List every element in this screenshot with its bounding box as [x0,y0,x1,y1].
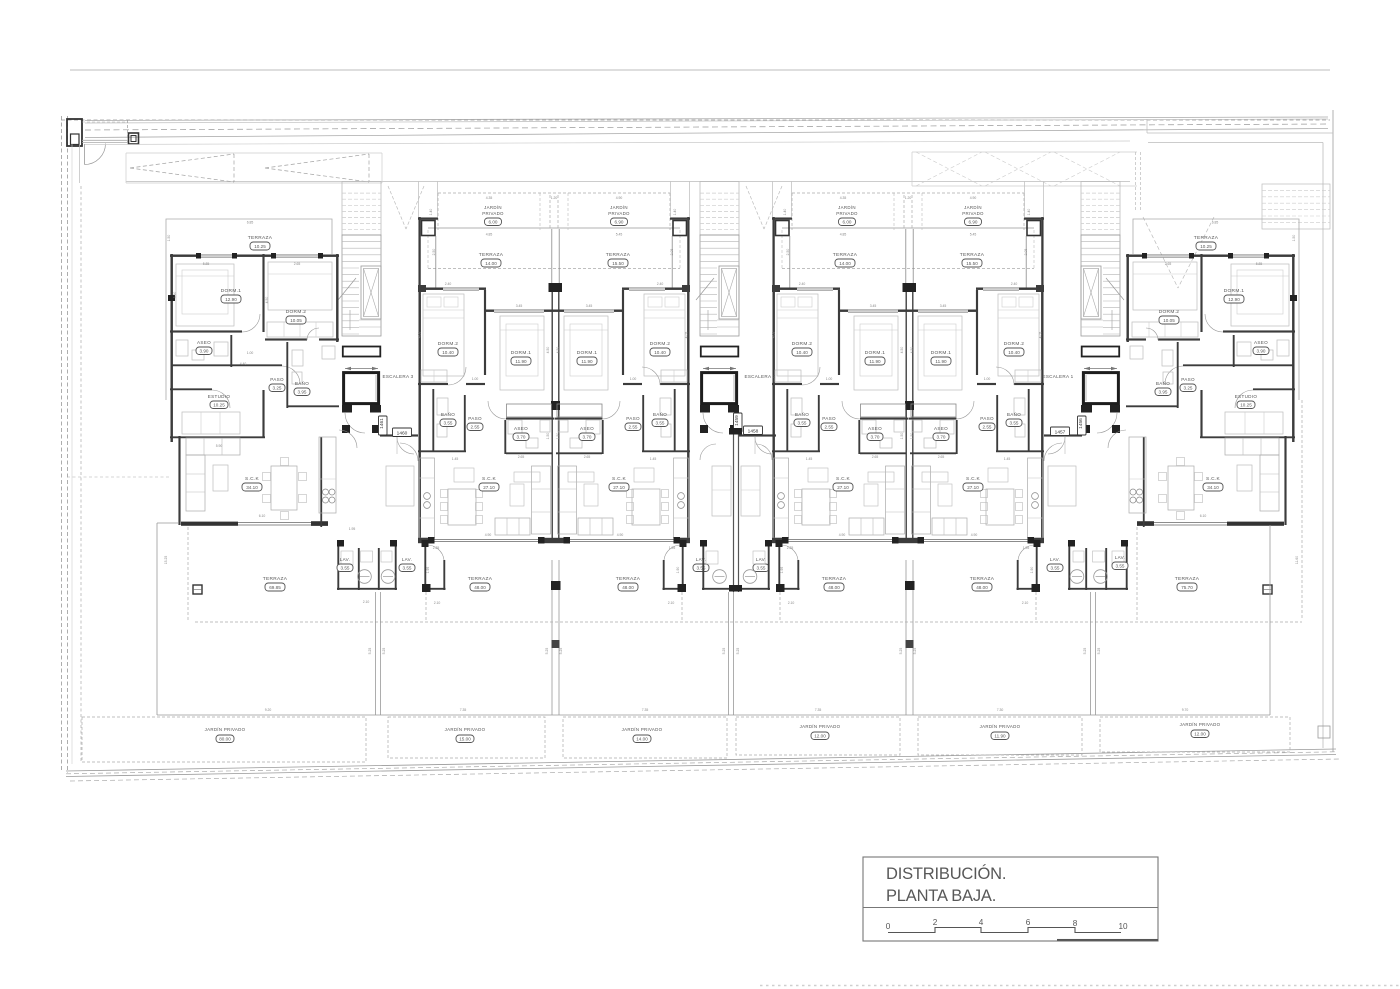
svg-text:5.85: 5.85 [203,262,210,266]
svg-text:5.25: 5.25 [736,648,740,655]
svg-text:1.95: 1.95 [349,527,356,531]
svg-text:ESCALERA 2: ESCALERA 2 [744,374,775,379]
svg-text:1458: 1458 [748,429,759,435]
svg-text:JARDÍN PRIVADO: JARDÍN PRIVADO [980,724,1021,729]
svg-text:S.C.K: S.C.K [1206,476,1221,482]
svg-text:1459: 1459 [734,415,740,426]
svg-text:1.50: 1.50 [1292,235,1296,242]
svg-text:3.95: 3.95 [1159,389,1168,394]
svg-text:ASEO: ASEO [1254,340,1268,345]
svg-text:2.65: 2.65 [1165,262,1172,266]
svg-text:BAÑO: BAÑO [295,380,309,386]
svg-text:1460: 1460 [397,431,408,437]
svg-text:1461: 1461 [379,418,385,429]
svg-text:5.25: 5.25 [545,648,549,655]
svg-text:12.90: 12.90 [225,297,237,302]
svg-text:75.70: 75.70 [1181,585,1193,590]
svg-text:ASEO: ASEO [197,340,211,345]
svg-text:10.05: 10.05 [290,318,302,323]
svg-text:6: 6 [1026,918,1031,927]
svg-text:6.85: 6.85 [247,221,254,225]
svg-text:10.25: 10.25 [213,402,225,407]
svg-text:9.20: 9.20 [265,708,272,712]
svg-text:PASO: PASO [1181,377,1195,382]
svg-text:0: 0 [886,922,891,931]
svg-text:JARDÍN PRIVADO: JARDÍN PRIVADO [622,727,663,732]
svg-text:3.90: 3.90 [173,292,177,299]
svg-text:DORM.1: DORM.1 [1224,288,1244,294]
svg-text:5.25: 5.25 [1083,648,1087,655]
svg-text:34.10: 34.10 [1207,485,1219,490]
svg-text:DORM.2: DORM.2 [286,309,306,315]
svg-text:TERRAZA: TERRAZA [1175,576,1200,582]
svg-text:34.10: 34.10 [246,485,258,490]
svg-text:JARDÍN PRIVADO: JARDÍN PRIVADO [800,724,841,729]
svg-text:5.25: 5.25 [913,648,917,655]
svg-text:DORM.1: DORM.1 [221,288,241,294]
svg-text:3.25: 3.25 [273,385,282,390]
svg-text:PASO: PASO [270,377,284,382]
svg-text:10.25: 10.25 [1240,402,1252,407]
svg-text:15.25: 15.25 [164,556,168,565]
svg-text:3.55: 3.55 [1116,563,1125,568]
svg-text:5.25: 5.25 [382,648,386,655]
svg-text:11.60: 11.60 [1295,556,1299,564]
svg-text:10.25: 10.25 [254,244,266,249]
svg-text:5.25: 5.25 [722,648,726,655]
svg-text:6.85: 6.85 [1212,221,1219,225]
svg-text:10: 10 [1118,922,1128,931]
svg-text:TERRAZA: TERRAZA [1194,235,1219,241]
svg-text:ESTUDIO: ESTUDIO [208,394,231,399]
svg-text:7.35: 7.35 [460,708,467,712]
svg-text:14.00: 14.00 [636,736,648,741]
svg-text:1.00: 1.00 [247,351,254,355]
svg-text:3.95: 3.95 [298,389,307,394]
svg-text:69.85: 69.85 [269,585,281,590]
svg-text:5.25: 5.25 [368,648,372,655]
svg-text:11.90: 11.90 [994,733,1006,738]
svg-text:DISTRIBUCIÓN.: DISTRIBUCIÓN. [886,864,1006,883]
svg-text:6.10: 6.10 [1200,514,1207,518]
svg-text:6.10: 6.10 [259,514,266,518]
svg-text:3.90: 3.90 [200,348,209,353]
svg-text:10.25: 10.25 [1200,244,1212,249]
svg-text:5.85: 5.85 [1256,262,1263,266]
svg-text:4.40: 4.40 [240,362,247,366]
svg-text:1457: 1457 [1055,430,1066,436]
svg-text:ESTUDIO: ESTUDIO [1235,394,1258,399]
svg-text:ESCALERA 3: ESCALERA 3 [382,374,413,379]
svg-text:LAV.: LAV. [340,557,350,562]
svg-text:3.55: 3.55 [341,565,350,570]
svg-text:7.30: 7.30 [997,708,1004,712]
svg-text:5.25: 5.25 [1097,648,1101,655]
svg-text:ESCALERA 1: ESCALERA 1 [1042,374,1073,379]
svg-text:2: 2 [933,918,938,927]
svg-text:9.70: 9.70 [1182,708,1189,712]
svg-text:BAÑO: BAÑO [1156,380,1170,386]
svg-text:12.90: 12.90 [1228,297,1240,302]
svg-text:TERRAZA: TERRAZA [248,235,273,241]
svg-text:5.25: 5.25 [899,648,903,655]
svg-text:7.35: 7.35 [815,708,822,712]
svg-text:8: 8 [1073,919,1078,928]
svg-text:5.25: 5.25 [559,648,563,655]
svg-text:12.00: 12.00 [814,733,826,738]
svg-text:4: 4 [979,918,984,927]
svg-text:80.00: 80.00 [219,736,231,741]
svg-text:2.65: 2.65 [294,262,301,266]
svg-text:2.10: 2.10 [363,600,370,604]
svg-text:3.90: 3.90 [1257,348,1266,353]
svg-text:1.50: 1.50 [167,235,171,242]
svg-text:PLANTA BAJA.: PLANTA BAJA. [886,887,996,905]
svg-text:3.25: 3.25 [1184,385,1193,390]
svg-text:4.50: 4.50 [265,297,269,304]
svg-text:1456: 1456 [1078,418,1084,429]
svg-text:JARDÍN PRIVADO: JARDÍN PRIVADO [445,727,486,732]
svg-text:LAV.: LAV. [1115,555,1125,560]
svg-text:5.90: 5.90 [216,444,223,448]
svg-text:JARDÍN PRIVADO: JARDÍN PRIVADO [1180,722,1221,727]
svg-text:DORM.2: DORM.2 [1159,309,1179,315]
svg-text:JARDÍN PRIVADO: JARDÍN PRIVADO [205,727,246,732]
svg-text:S.C.K: S.C.K [245,476,260,482]
svg-text:10.05: 10.05 [1163,318,1175,323]
svg-text:15.00: 15.00 [459,736,471,741]
svg-text:7.35: 7.35 [642,708,649,712]
svg-text:12.00: 12.00 [1194,731,1206,736]
svg-text:TERRAZA: TERRAZA [263,576,288,582]
